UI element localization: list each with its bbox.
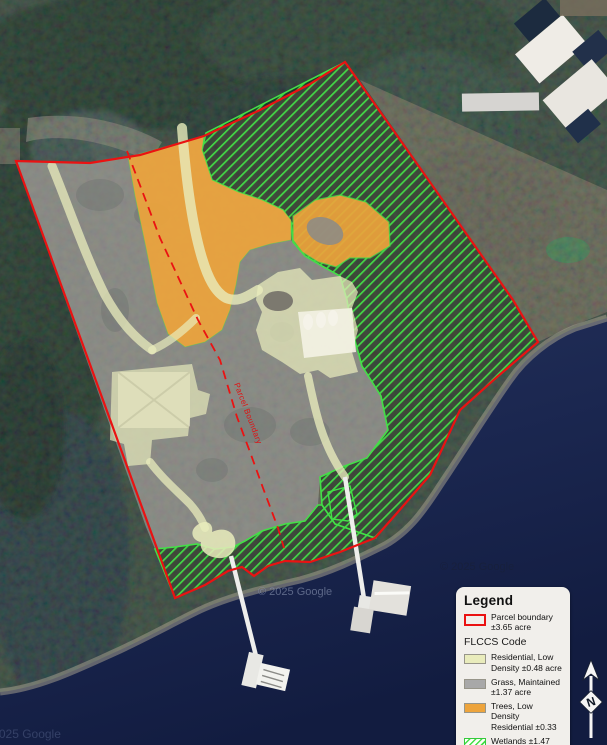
parcel-boundary-swatch	[464, 614, 486, 626]
legend-title: Legend	[464, 593, 563, 608]
legend-item-residential: Residential, Low Density ±0.48 acre	[463, 652, 563, 672]
legend-item-label: Trees, Low Density Residential ±0.33	[491, 701, 563, 732]
driveway-island	[263, 291, 293, 311]
legend-item-parcel-boundary: Parcel boundary ±3.65 acre	[463, 612, 563, 632]
legend: Legend Parcel boundary ±3.65 acre FLCCS …	[456, 587, 570, 745]
legend-item-label: Wetlands ±1.47 acre	[491, 736, 563, 745]
legend-item-label: Grass, Maintained ±1.37 acre	[491, 677, 563, 697]
legend-item-label: Parcel boundary ±3.65 acre	[491, 612, 563, 632]
legend-section-flccs: FLCCS Code	[464, 636, 563, 648]
trees-swatch	[464, 703, 486, 713]
redacted-label-box	[462, 92, 539, 111]
legend-item-grass: Grass, Maintained ±1.37 acre	[463, 677, 563, 697]
residential-swatch	[464, 654, 486, 664]
grass-swatch	[464, 679, 486, 689]
wetlands-swatch	[464, 738, 486, 745]
north-arrow: N	[576, 658, 606, 744]
map-canvas[interactable]: Parcel Boundary © 2025 Google © 2025 Goo…	[0, 0, 607, 745]
legend-item-trees: Trees, Low Density Residential ±0.33	[463, 701, 563, 732]
legend-item-label: Residential, Low Density ±0.48 acre	[491, 652, 563, 672]
legend-item-wetlands: Wetlands ±1.47 acre	[463, 736, 563, 745]
